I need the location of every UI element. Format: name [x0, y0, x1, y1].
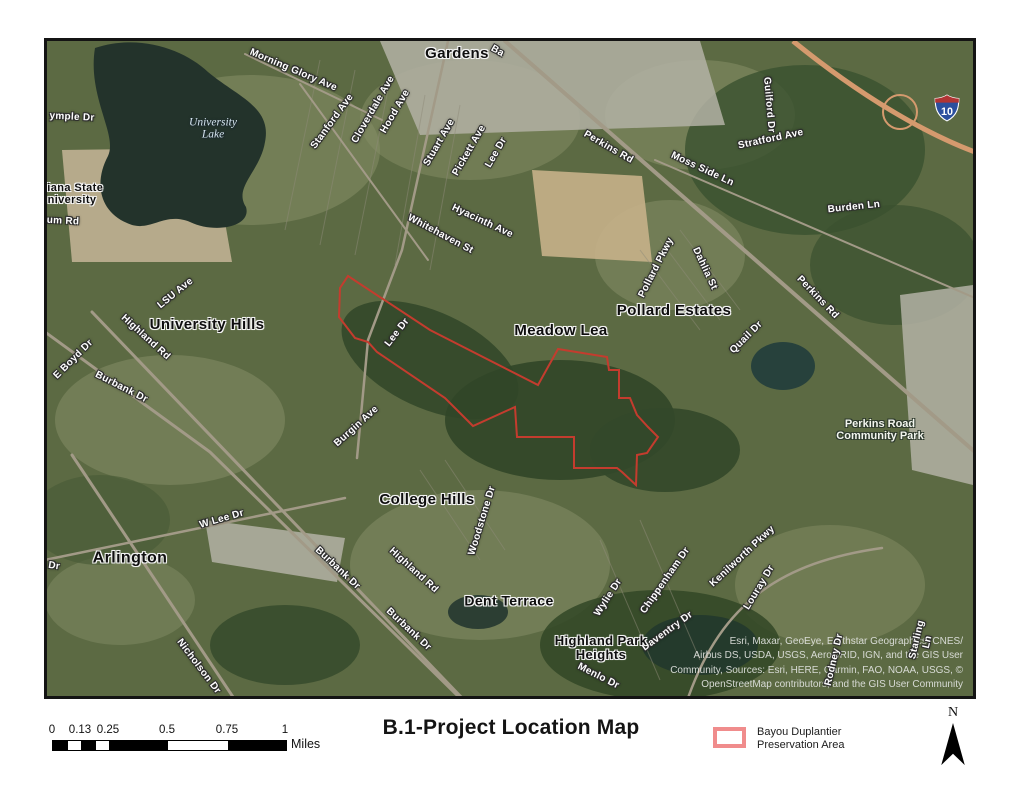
scale-bar-segment: [168, 741, 228, 750]
scale-bar-segment: [53, 741, 68, 750]
scale-bar-segment: [228, 741, 286, 750]
shield-route-number: 10: [941, 106, 953, 118]
map-frame: Esri, Maxar, GeoEye, Earthstar Geographi…: [44, 38, 976, 699]
map-canvas: [47, 41, 973, 696]
scale-tick-label: 0.75: [216, 724, 238, 736]
scale-tick-label: 0.13: [69, 724, 91, 736]
scale-tick-label: 1: [282, 724, 288, 736]
map-title: B.1-Project Location Map: [383, 716, 640, 740]
scale-tick-label: 0.5: [159, 724, 175, 736]
scale-bar: [52, 740, 287, 751]
scale-tick-label: 0.25: [97, 724, 119, 736]
scale-bar-segment: [68, 741, 81, 750]
scale-bar-segment: [96, 741, 109, 750]
interstate-10-shield-icon: 10: [934, 94, 960, 122]
scale-bar-segment: [81, 741, 96, 750]
north-arrow-icon: [938, 721, 968, 768]
scale-bar-segment: [109, 741, 168, 750]
scale-tick-label: 0: [49, 724, 55, 736]
scale-bar-unit: Miles: [291, 737, 320, 751]
legend-label: Bayou Duplantier Preservation Area: [757, 726, 844, 752]
north-label: N: [948, 705, 958, 721]
legend-swatch: [713, 727, 746, 748]
